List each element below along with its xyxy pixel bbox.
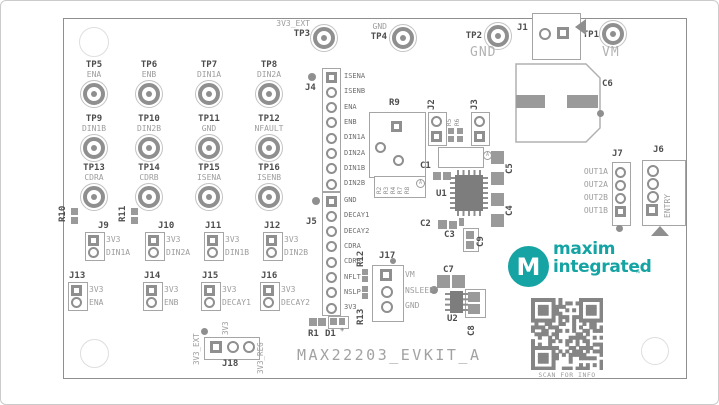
jumper-pin	[263, 297, 274, 308]
vm-label: VM	[602, 45, 620, 60]
test-point-pad	[135, 134, 163, 162]
test-point-pad	[255, 183, 283, 211]
tp2-ref: TP2	[457, 32, 482, 41]
j4-pin-label: ENB	[344, 119, 357, 126]
r11-pad	[131, 217, 138, 224]
mounting-hole	[79, 27, 109, 57]
test-point-signal: ENA	[66, 70, 122, 79]
jumper-ref: J11	[205, 222, 221, 231]
j18-pin1-dot	[201, 328, 208, 335]
jumper-bottom-label: DIN2A	[166, 249, 190, 257]
jumper-pin	[88, 235, 99, 246]
test-point-ring	[198, 186, 220, 208]
test-point-signal: CDRA	[66, 173, 122, 182]
j1-pin	[539, 28, 551, 40]
jumper-ref: J9	[98, 222, 109, 231]
c6-pad	[567, 95, 598, 108]
tp-ring	[487, 25, 509, 47]
j5-pin-label: DECAY2	[344, 228, 369, 235]
j7-pin1-dot	[616, 225, 623, 232]
test-point-ref: TP14	[121, 163, 177, 173]
test-point: TP7DIN1A	[181, 60, 237, 108]
test-point-ref: TP9	[66, 114, 122, 124]
tp1-pad	[599, 20, 627, 48]
j17-pin-label: NSLEEP	[405, 287, 434, 295]
tp3-pad	[310, 24, 338, 52]
jumper-top-label: 3V3	[225, 236, 239, 244]
test-point-ref: TP12	[241, 114, 297, 124]
jumper-bottom-label: DECAY2	[281, 299, 310, 307]
test-point-signal: GND	[181, 124, 237, 133]
j4-pin-label: ISENA	[344, 73, 365, 80]
d1-ref: D1	[325, 330, 336, 339]
board-title: MAX22203_EVKIT_A	[297, 346, 482, 364]
mounting-hole	[641, 337, 669, 365]
test-point: TP13CDRA	[66, 163, 122, 211]
test-point-pad	[255, 134, 283, 162]
jumper-bottom-label: DIN1A	[106, 249, 130, 257]
jumper-pin	[266, 235, 277, 246]
test-point-dot	[206, 145, 212, 151]
jumper-pin	[71, 297, 82, 308]
jumper-bottom-label: DIN2B	[284, 249, 308, 257]
j17-pin	[381, 301, 393, 313]
r9-pad	[375, 142, 386, 153]
test-point: TP14CDRB	[121, 163, 177, 211]
test-point-dot	[91, 194, 97, 200]
test-point: TP9DIN1B	[66, 114, 122, 162]
j7-pin	[615, 167, 626, 178]
test-point-ref: TP10	[121, 114, 177, 124]
j18-rail-label: 3V3	[222, 309, 231, 335]
jumper-top-label: 3V3	[106, 236, 120, 244]
j6-pin	[647, 178, 659, 190]
j5-pin-label: GND	[344, 197, 357, 204]
r6-ref: R6	[455, 110, 463, 126]
qr-code	[531, 298, 603, 370]
tp3-signal: 3V3_EXT	[254, 20, 310, 28]
test-point: TP11GND	[181, 114, 237, 162]
jumper-bottom-label: ENA	[89, 299, 103, 307]
j7-pin-label: OUT2B	[570, 194, 608, 202]
test-point-dot	[266, 145, 272, 151]
jumper-pin	[266, 247, 277, 258]
maxim-monogram: M	[517, 253, 541, 281]
j4-pin1-dot	[308, 73, 316, 81]
j3-ref: J3	[471, 92, 480, 110]
tp3-ref: TP3	[254, 30, 310, 39]
j4-pin-label: DIN2A	[344, 150, 365, 157]
j7-pin	[615, 180, 626, 191]
j4-pin	[326, 179, 337, 190]
resistor-array-body	[438, 147, 484, 168]
j5-pin-label: 3V3	[344, 304, 357, 311]
j6-pin1-arrow-icon	[651, 226, 669, 236]
j7-pin-label: OUT1A	[570, 168, 608, 176]
j2-pin	[431, 116, 442, 127]
r9-ref: R9	[389, 99, 400, 108]
j17-pin	[381, 286, 393, 298]
j18-pin	[227, 341, 239, 353]
test-point-signal: DIN1B	[66, 124, 122, 133]
r12-pad	[362, 269, 368, 275]
test-point-ring	[83, 186, 105, 208]
c8-ref: C8	[468, 318, 477, 336]
c2-pad	[449, 221, 457, 229]
pcb-screenshot: 3V3_EXT TP3 GND TP4 TP2 GND TP1 VM J1 C6…	[0, 0, 719, 405]
test-point-ring	[83, 83, 105, 105]
j17-pin1-dot	[390, 258, 396, 264]
u1-ref: U1	[436, 190, 447, 199]
j3-pin	[474, 116, 485, 127]
j3-pin	[474, 131, 485, 142]
test-point-ring	[258, 186, 280, 208]
c9-pad	[466, 231, 474, 239]
j4-pin	[326, 87, 337, 98]
test-point-pad	[255, 80, 283, 108]
tp-dot	[610, 31, 616, 37]
jumper-bottom-label: DECAY1	[222, 299, 251, 307]
test-point-signal: ISENA	[181, 173, 237, 182]
jumper-pin	[148, 235, 159, 246]
c5-pad	[491, 172, 504, 185]
c2-pad	[438, 220, 447, 229]
j5-pin-label: CDRA	[344, 243, 361, 250]
j18-rail-label: 3V3_EXT	[193, 311, 202, 365]
j7-ref: J7	[612, 150, 623, 159]
jumper-ref: J15	[202, 272, 218, 281]
j5-pin	[326, 196, 337, 207]
jumper-top-label: 3V3	[281, 286, 295, 294]
test-point-ring	[138, 186, 160, 208]
test-point: TP10DIN2B	[121, 114, 177, 162]
test-point-ring	[258, 83, 280, 105]
u1-chip	[447, 167, 491, 219]
test-point-dot	[91, 91, 97, 97]
gnd-label: GND	[470, 45, 496, 60]
r1-ref: R1	[308, 330, 319, 339]
j17-pin-label: VM	[405, 271, 415, 279]
test-point-dot	[146, 194, 152, 200]
test-point-pad	[135, 80, 163, 108]
array-resistor-ref: R8	[405, 178, 412, 194]
j6-ref: J6	[653, 146, 664, 155]
polarity-arrow-icon	[575, 19, 586, 35]
jumper-pin	[263, 285, 274, 296]
tp-ring	[602, 23, 624, 45]
j7-pin	[615, 193, 626, 204]
d1-pad	[339, 318, 345, 325]
r9-pad	[393, 155, 404, 166]
test-point-ref: TP6	[121, 60, 177, 70]
test-point-ref: TP8	[241, 60, 297, 70]
j17-pin	[380, 269, 392, 281]
jumper-top-label: 3V3	[222, 286, 236, 294]
jumper-pin	[71, 285, 82, 296]
jumper-pin	[207, 235, 218, 246]
c1-pad	[433, 172, 441, 180]
r6-pad	[457, 128, 463, 134]
j4-pin	[326, 102, 337, 113]
r13-pad	[362, 293, 368, 299]
c3-pad	[459, 218, 464, 226]
tp-ring	[392, 27, 414, 49]
tp4-pad	[389, 24, 417, 52]
r9-pad	[391, 121, 402, 132]
test-point-signal: DIN1A	[181, 70, 237, 79]
jumper-pin	[207, 247, 218, 258]
j7-pin	[615, 206, 626, 217]
jumper-top-label: 3V3	[164, 286, 178, 294]
j4-ref: J4	[305, 84, 316, 93]
test-point-dot	[91, 145, 97, 151]
test-point: TP6ENB	[121, 60, 177, 108]
test-point-ref: TP15	[181, 163, 237, 173]
jumper-pin	[146, 285, 157, 296]
j5-ref: J5	[306, 218, 317, 227]
test-point-dot	[206, 194, 212, 200]
jumper-bottom-label: ENB	[164, 299, 178, 307]
j5-pin-label: CDRB	[344, 258, 361, 265]
j4-pin	[326, 148, 337, 159]
r1-pad	[318, 318, 326, 326]
j4-pin-label: DIN1A	[344, 134, 365, 141]
test-point-signal: ISENB	[241, 173, 297, 182]
j5-pin	[326, 257, 337, 268]
r10-pad	[71, 217, 78, 224]
test-point-ref: TP5	[66, 60, 122, 70]
test-point-signal: DIN2B	[121, 124, 177, 133]
r5-pad	[448, 136, 454, 142]
test-point-dot	[146, 91, 152, 97]
r1-pad	[309, 318, 317, 326]
test-point-ring	[138, 137, 160, 159]
test-point-pad	[195, 80, 223, 108]
c4-ref: C4	[506, 196, 515, 216]
test-point-ref: TP13	[66, 163, 122, 173]
j4-pin-label: DIN1B	[344, 165, 365, 172]
jumper-bottom-label: DIN1B	[225, 249, 249, 257]
test-point-ring	[83, 137, 105, 159]
r13-ref: R13	[357, 301, 366, 325]
j5-pin-label: NSLP	[344, 289, 361, 296]
test-point-dot	[206, 91, 212, 97]
j4-pin	[326, 163, 337, 174]
j5-pin-label: NFLT	[344, 274, 361, 281]
j7-pin-label: OUT2A	[570, 181, 608, 189]
j4-pin-label: ISENB	[344, 88, 365, 95]
r13-pad	[362, 286, 368, 292]
test-point: TP8DIN2A	[241, 60, 297, 108]
c2-ref: C2	[420, 220, 431, 229]
j5-pin	[326, 272, 337, 283]
assembly-a-marker: A	[416, 179, 425, 188]
tp-dot	[321, 35, 327, 41]
c3-ref: C3	[444, 231, 455, 240]
test-point-dot	[146, 145, 152, 151]
c6-pad	[516, 95, 545, 108]
tp-dot	[495, 33, 501, 39]
test-point-ref: TP7	[181, 60, 237, 70]
j4-pin	[326, 72, 337, 83]
d1-pad	[330, 318, 337, 325]
d1-polarity-mark: +	[340, 327, 344, 334]
j7-pin-label: OUT1B	[570, 207, 608, 215]
j2-ref: J2	[428, 92, 437, 110]
j4-pin-label: ENA	[344, 104, 357, 111]
j17-pin-label: GND	[405, 302, 419, 310]
j6-pin	[646, 204, 658, 216]
j6-vertical-label: ENTRY	[664, 166, 674, 218]
j4-pin	[326, 133, 337, 144]
j4-pin	[326, 117, 337, 128]
tp4-ref: TP4	[349, 33, 387, 42]
test-point: TP5ENA	[66, 60, 122, 108]
test-point-pad	[195, 134, 223, 162]
j5-pin	[326, 287, 337, 298]
test-point-signal: DIN2A	[241, 70, 297, 79]
j5-pin	[326, 226, 337, 237]
jumper-top-label: 3V3	[166, 236, 180, 244]
j18-pin	[243, 341, 255, 353]
j1-ref: J1	[517, 24, 528, 33]
jumper-ref: J12	[264, 222, 280, 231]
r5-pad	[448, 128, 454, 134]
u2-chip	[441, 285, 471, 319]
c4-pad	[491, 193, 504, 206]
test-point-signal: ENB	[121, 70, 177, 79]
test-point-pad	[135, 183, 163, 211]
mounting-hole	[80, 339, 109, 368]
jumper-top-label: 3V3	[89, 286, 103, 294]
j18-rail-label: 3V3_REG	[257, 308, 266, 374]
c6-ref: C6	[602, 80, 613, 89]
test-point-ring	[258, 137, 280, 159]
c9-ref: C9	[477, 229, 486, 247]
j18-pin	[210, 341, 222, 353]
maxim-logo-icon: M	[508, 246, 549, 287]
j6-pin	[647, 191, 659, 203]
test-point: TP15ISENA	[181, 163, 237, 211]
test-point-dot	[266, 91, 272, 97]
qr-caption: SCAN FOR INFO	[527, 371, 607, 379]
test-point-dot	[266, 194, 272, 200]
j5-pin1-dot	[312, 197, 320, 205]
test-point-ring	[198, 83, 220, 105]
tp4-signal: GND	[349, 23, 387, 31]
j5-pin	[326, 211, 337, 222]
test-point-signal: CDRB	[121, 173, 177, 182]
jumper-pin	[204, 297, 215, 308]
test-point-ring	[138, 83, 160, 105]
test-point-ref: TP11	[181, 114, 237, 124]
jumper-ref: J10	[158, 222, 174, 231]
c5-pad	[491, 151, 504, 164]
j2-pin	[431, 131, 442, 142]
c6-polarity-dot	[597, 110, 604, 117]
c1-ref: C1	[420, 162, 431, 171]
test-point-pad	[80, 134, 108, 162]
test-point-signal: NFAULT	[241, 124, 297, 133]
test-point-ring	[198, 137, 220, 159]
jumper-pin	[148, 247, 159, 258]
j4-pin-label: DIN2B	[344, 180, 365, 187]
jumper-ref: J14	[144, 272, 160, 281]
j6-pin	[647, 165, 659, 177]
j5-pin	[326, 303, 337, 314]
j5-pin-label: DECAY1	[344, 212, 369, 219]
j5-pin	[326, 241, 337, 252]
r12-pad	[362, 276, 368, 282]
r6-pad	[457, 136, 463, 142]
jumper-top-label: 3V3	[284, 236, 298, 244]
logo-trademark: ™	[635, 271, 641, 278]
j18-ref: J18	[222, 360, 238, 369]
j1-pin	[557, 27, 569, 39]
jumper-ref: J16	[261, 272, 277, 281]
c5-ref: C5	[506, 154, 515, 174]
tp-ring	[313, 27, 335, 49]
test-point-pad	[195, 183, 223, 211]
c4-pad	[491, 214, 504, 227]
test-point: TP12NFAULT	[241, 114, 297, 162]
jumper-pin	[146, 297, 157, 308]
test-point-pad	[80, 183, 108, 211]
logo-word1: maxim	[553, 241, 615, 258]
test-point-ref: TP16	[241, 163, 297, 173]
c9-pad	[466, 241, 474, 249]
test-point: TP16ISENB	[241, 163, 297, 211]
jumper-ref: J13	[69, 272, 85, 281]
jumper-pin	[88, 247, 99, 258]
tp-dot	[400, 35, 406, 41]
jumper-pin	[204, 285, 215, 296]
test-point-pad	[80, 80, 108, 108]
